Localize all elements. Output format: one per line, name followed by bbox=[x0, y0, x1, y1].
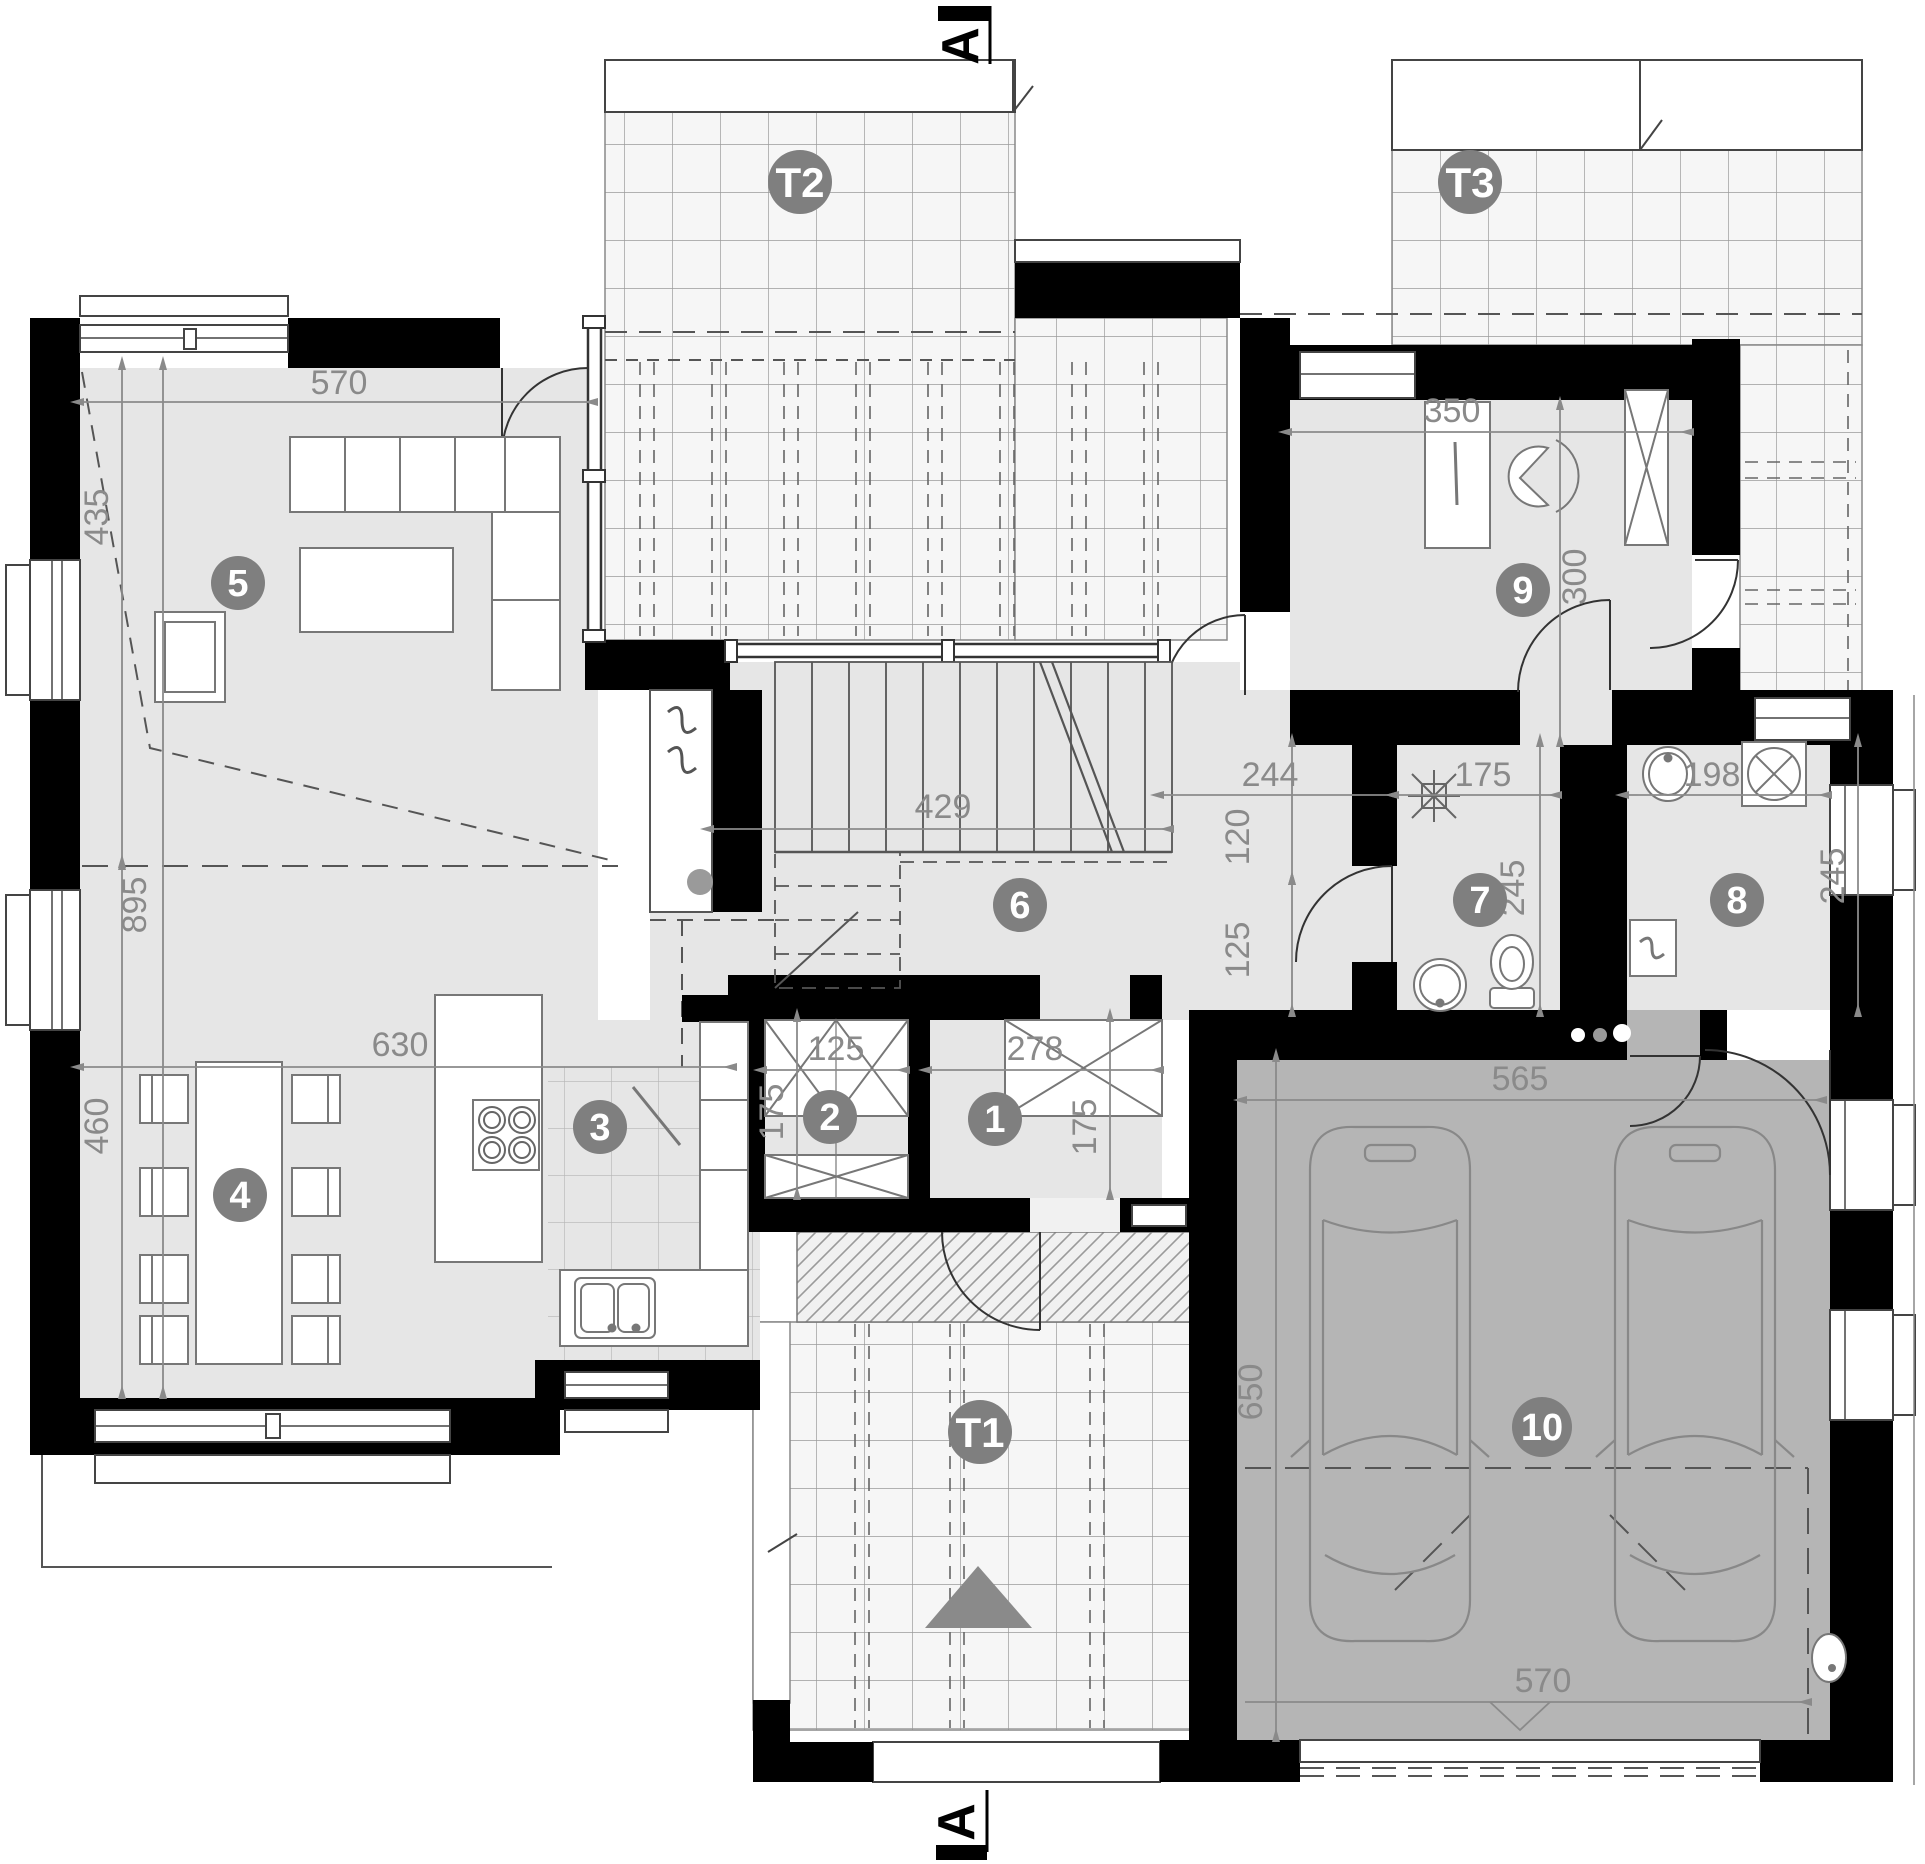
floor-drain-icon bbox=[1812, 1634, 1846, 1682]
dim-label: 895 bbox=[116, 877, 154, 934]
coffee-table-icon bbox=[300, 548, 453, 632]
svg-text:1: 1 bbox=[984, 1099, 1005, 1141]
terrace-t1 bbox=[753, 1232, 1190, 1782]
garage-door bbox=[1300, 1740, 1760, 1762]
washbasin-icon bbox=[1414, 959, 1466, 1011]
wall-room9-left bbox=[1240, 318, 1290, 612]
window-garage-1 bbox=[1830, 1100, 1893, 1210]
dim-label: 245 bbox=[1814, 848, 1852, 905]
window-utility bbox=[1755, 698, 1850, 740]
dim-label: 175 bbox=[1066, 1099, 1104, 1156]
t3-header-band bbox=[1392, 60, 1862, 150]
terrace-badge-t3: T3 bbox=[1438, 150, 1502, 214]
svg-text:T2: T2 bbox=[775, 159, 824, 206]
wall-fireplace-side bbox=[585, 640, 730, 690]
armchair-icon bbox=[155, 612, 225, 702]
svg-text:10: 10 bbox=[1521, 1407, 1563, 1449]
kitchen-sink-icon bbox=[575, 1278, 655, 1338]
flue-icon bbox=[687, 869, 713, 895]
t1-front-step bbox=[873, 1742, 1160, 1782]
parapet-band bbox=[1015, 240, 1240, 262]
dim-label: 244 bbox=[1242, 756, 1299, 794]
dim-label: 630 bbox=[372, 1026, 429, 1064]
window-garage-2 bbox=[1830, 1310, 1893, 1420]
svg-text:9: 9 bbox=[1512, 570, 1533, 612]
dim-label: 175 bbox=[1455, 756, 1512, 794]
floor-plan-drawing: 570 435 895 460 630 429 244 120 125 125 … bbox=[0, 0, 1925, 1864]
dim-label: 125 bbox=[808, 1030, 865, 1068]
section-marker-top: A bbox=[932, 6, 990, 65]
svg-text:T3: T3 bbox=[1445, 159, 1494, 206]
window-sill bbox=[1893, 1315, 1915, 1415]
fireplace-icon bbox=[650, 690, 713, 912]
dim-label: 650 bbox=[1232, 1364, 1270, 1421]
svg-text:T1: T1 bbox=[955, 1409, 1004, 1456]
floor-plan-canvas: 570 435 895 460 630 429 244 120 125 125 … bbox=[0, 0, 1925, 1864]
room-badge-9: 9 bbox=[1496, 563, 1550, 617]
dim-label: 565 bbox=[1492, 1060, 1549, 1098]
dim-label: 460 bbox=[78, 1098, 116, 1155]
wardrobe-x-icon bbox=[1625, 390, 1668, 545]
room-badge-1: 1 bbox=[968, 1092, 1022, 1146]
window-left-1 bbox=[30, 560, 80, 700]
room-badge-6: 6 bbox=[993, 878, 1047, 932]
dim-label: 350 bbox=[1424, 392, 1481, 430]
dim-label: 435 bbox=[78, 489, 116, 546]
section-letter: A bbox=[928, 1803, 986, 1841]
washer-icon bbox=[1742, 742, 1806, 806]
wall-garage-left bbox=[1189, 1060, 1237, 1740]
window-front-sidelight bbox=[1132, 1205, 1186, 1226]
section-letter: A bbox=[932, 27, 990, 65]
toilet-icon bbox=[1490, 935, 1534, 1008]
dim-label: 198 bbox=[1684, 756, 1741, 794]
room-badge-7: 7 bbox=[1453, 873, 1507, 927]
svg-text:3: 3 bbox=[589, 1107, 610, 1149]
dim-label: 570 bbox=[1515, 1662, 1572, 1700]
svg-text:7: 7 bbox=[1469, 880, 1490, 922]
boiler-icon bbox=[1630, 920, 1676, 976]
window-sill bbox=[95, 1455, 450, 1483]
shower-icon bbox=[1408, 770, 1460, 822]
terrace-t2 bbox=[605, 60, 1227, 640]
wall-entry-top bbox=[765, 975, 1040, 1020]
svg-text:4: 4 bbox=[229, 1175, 250, 1217]
t2-header-band bbox=[605, 60, 1015, 112]
window-sill bbox=[6, 565, 30, 695]
svg-text:8: 8 bbox=[1726, 880, 1747, 922]
room-badge-10: 10 bbox=[1512, 1397, 1572, 1457]
chimney bbox=[712, 690, 762, 850]
dim-label: 125 bbox=[1219, 922, 1257, 979]
window-sill bbox=[1893, 790, 1915, 890]
kitchen-island bbox=[435, 995, 542, 1262]
room-badge-5: 5 bbox=[211, 556, 265, 610]
svg-text:2: 2 bbox=[819, 1097, 840, 1139]
wall-top-middle bbox=[1015, 262, 1240, 318]
svg-text:6: 6 bbox=[1009, 885, 1030, 927]
dim-label: 570 bbox=[311, 364, 368, 402]
wall-left bbox=[30, 318, 80, 1455]
dim-label: 120 bbox=[1219, 809, 1257, 866]
dim-label: 429 bbox=[915, 788, 972, 826]
room-badge-2: 2 bbox=[803, 1090, 857, 1144]
wall-wc-utility bbox=[1560, 745, 1627, 1015]
dim-label: 278 bbox=[1007, 1030, 1064, 1068]
window-sill bbox=[565, 1410, 668, 1432]
entrance-porch-hatch bbox=[797, 1232, 1190, 1322]
section-marker-bottom: A bbox=[928, 1790, 987, 1860]
window-sill bbox=[80, 296, 288, 316]
window-room9 bbox=[1300, 352, 1415, 398]
window-sill bbox=[1893, 1105, 1915, 1205]
terrace-badge-t1: T1 bbox=[948, 1400, 1012, 1464]
dim-label: 175 bbox=[753, 1084, 791, 1141]
dim-label: 300 bbox=[1556, 549, 1594, 606]
room-badge-3: 3 bbox=[573, 1100, 627, 1154]
wall-entry-bottom bbox=[728, 1198, 1190, 1232]
room-badge-8: 8 bbox=[1710, 873, 1764, 927]
window-left-2 bbox=[30, 890, 80, 1030]
terrace-badge-t2: T2 bbox=[768, 150, 832, 214]
room-badge-4: 4 bbox=[213, 1168, 267, 1222]
window-sill bbox=[6, 895, 30, 1025]
svg-text:5: 5 bbox=[227, 563, 248, 605]
